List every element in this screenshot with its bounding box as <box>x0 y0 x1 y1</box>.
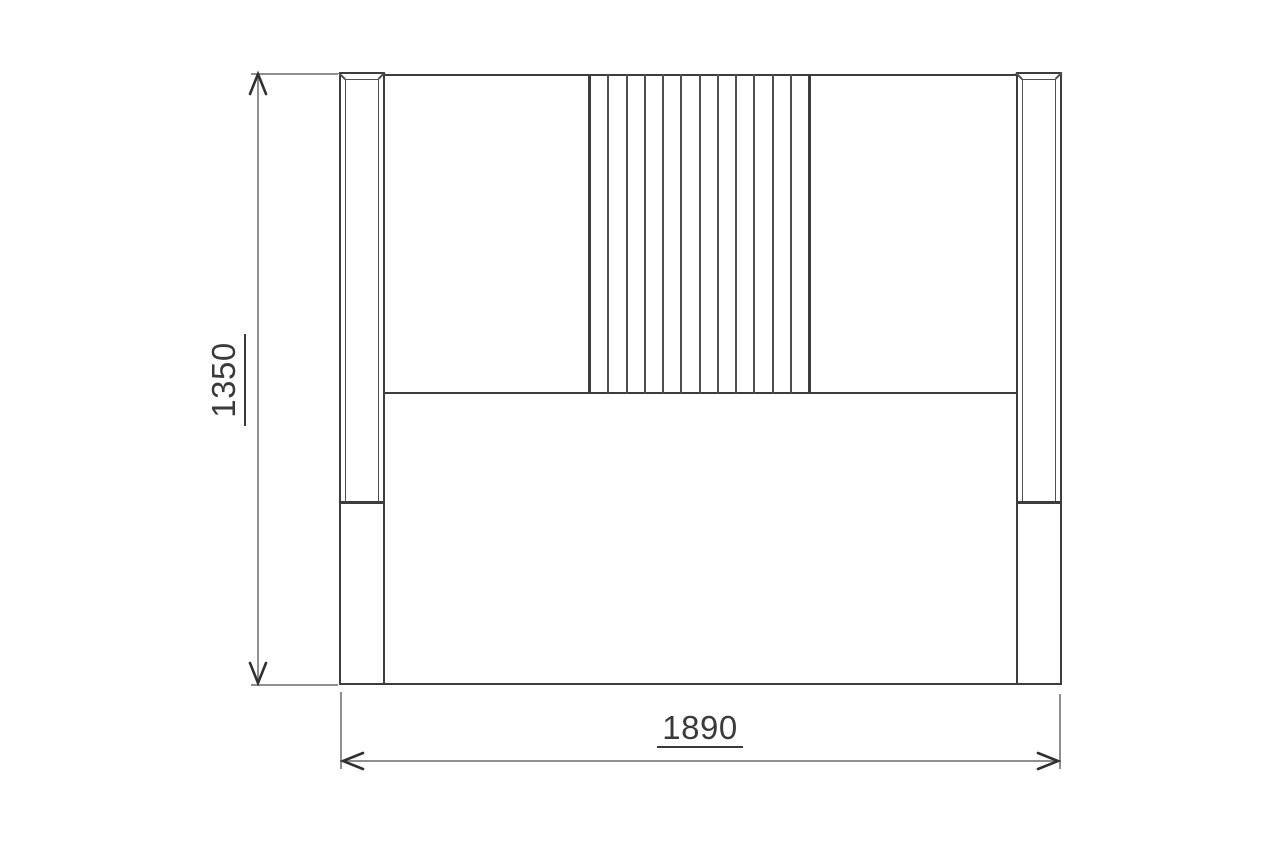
slat-cell <box>774 74 792 393</box>
slat-cell <box>664 74 682 393</box>
dim-arrow-left-icon <box>341 750 365 772</box>
slat-cell <box>755 74 773 393</box>
left-post-inner-frame <box>345 79 379 503</box>
slat-band <box>588 74 811 393</box>
width-dimension-label: 1890 <box>657 710 743 748</box>
technical-drawing: 1350 1890 <box>0 0 1280 844</box>
slat-cell <box>792 74 808 393</box>
slat-cell <box>591 74 609 393</box>
right-post-leg-cap-line <box>1016 501 1062 504</box>
slat-cell <box>682 74 700 393</box>
slat-cell <box>609 74 627 393</box>
right-post-inner-frame <box>1022 79 1056 503</box>
slat-cell <box>646 74 664 393</box>
height-dimension-label: 1350 <box>206 334 246 426</box>
slat-cell <box>701 74 719 393</box>
slat-cell <box>737 74 755 393</box>
height-dim-line <box>257 74 259 685</box>
dim-arrow-up-icon <box>247 72 269 96</box>
width-dim-line <box>341 760 1060 762</box>
slat-cell <box>719 74 737 393</box>
slat-cell <box>628 74 646 393</box>
left-post-leg-cap-line <box>339 501 385 504</box>
dim-arrow-down-icon <box>247 661 269 685</box>
panel-bottom-line <box>385 683 1016 685</box>
dim-arrow-right-icon <box>1036 750 1060 772</box>
